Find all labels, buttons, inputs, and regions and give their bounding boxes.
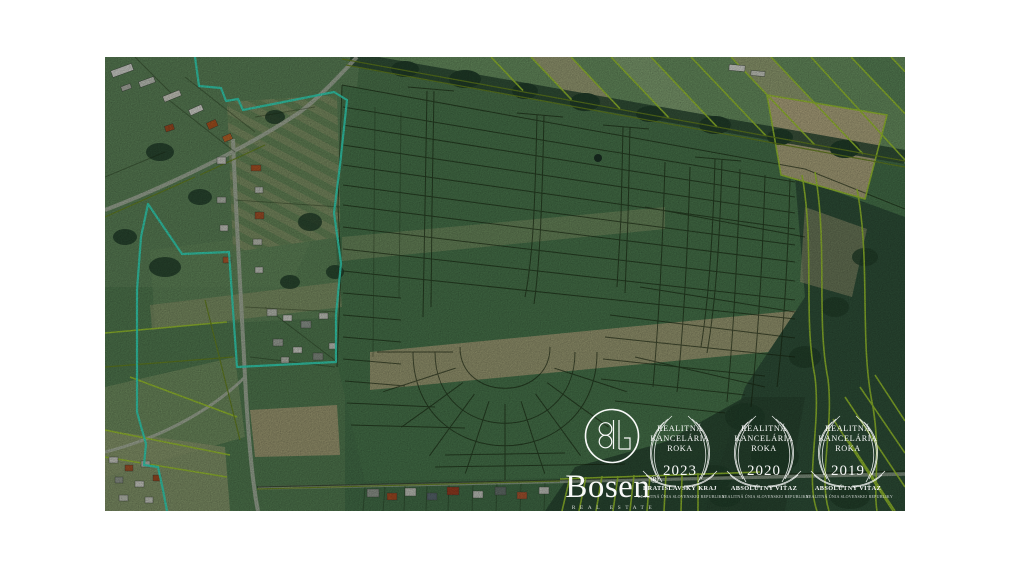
aerial-photo: Bosen® REAL ESTATE REALITNÁ KANCEL xyxy=(105,57,905,511)
aerial-map-graphic xyxy=(105,57,905,511)
page-canvas: Bosen® REAL ESTATE REALITNÁ KANCEL xyxy=(0,0,1011,570)
grain-overlay xyxy=(105,57,905,511)
